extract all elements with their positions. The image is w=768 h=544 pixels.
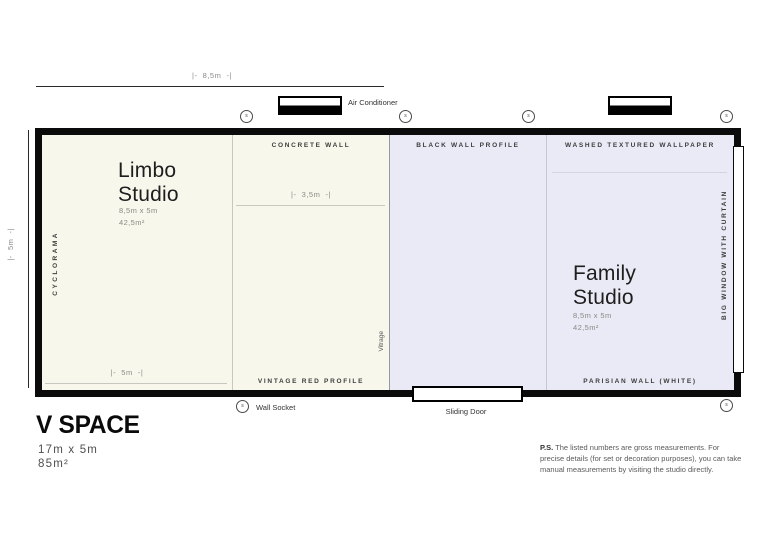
wall-socket-legend-label: Wall Socket xyxy=(256,403,295,412)
family-studio-title: Family Studio xyxy=(573,262,636,309)
top-dimension-line xyxy=(36,86,384,87)
air-conditioner-icon-2 xyxy=(608,96,672,115)
socket-symbol: s xyxy=(527,114,530,119)
top-width-dimension-label: |- 8,5m -| xyxy=(162,71,262,80)
air-conditioner-label: Air Conditioner xyxy=(348,98,398,107)
partition-cyclorama-concrete xyxy=(232,135,233,390)
socket-symbol: s xyxy=(725,114,728,119)
air-conditioner-icon xyxy=(278,96,342,115)
black-wall-profile-label: BLACK WALL PROFILE xyxy=(390,142,546,149)
socket-symbol: s xyxy=(245,114,248,119)
wall-socket-icon: s xyxy=(522,110,535,123)
family-studio-dimensions: 8,5m x 5m 42,5m² xyxy=(573,310,612,335)
big-window-with-curtain-label: BIG WINDOW WITH CURTAIN xyxy=(721,190,728,320)
floorplan-outline: Limbo Studio 8,5m x 5m 42,5m² CYCLORAMA … xyxy=(35,128,741,397)
concrete-width-dimension-label: |- 3,5m -| xyxy=(233,190,389,199)
sliding-door-label: Sliding Door xyxy=(416,407,516,416)
washed-wallpaper-line xyxy=(552,172,727,173)
parisian-wall-label: PARISIAN WALL (WHITE) xyxy=(546,378,734,385)
concrete-dimension-line xyxy=(236,205,385,206)
vintage-red-profile-label: VINTAGE RED PROFILE xyxy=(233,378,389,385)
wall-socket-icon: s xyxy=(720,110,733,123)
cyclorama-dimension-line xyxy=(45,383,227,384)
socket-symbol: s xyxy=(725,403,728,408)
space-dimensions: 17m x 5m xyxy=(38,444,98,456)
concrete-wall-label: CONCRETE WALL xyxy=(233,142,389,149)
socket-symbol: s xyxy=(241,404,244,409)
floorplan-page: |- 8,5m -| |- 5m -| Air Conditioner s s … xyxy=(0,0,768,544)
space-area: 85m² xyxy=(38,458,69,470)
partition-black-washed xyxy=(546,135,547,390)
cyclorama-wall-label: CYCLORAMA xyxy=(52,231,59,296)
ps-note-text: The listed numbers are gross measurement… xyxy=(540,443,741,474)
left-dimension-line xyxy=(28,130,29,388)
partition-vitrage xyxy=(389,135,390,390)
family-studio-zone xyxy=(389,135,734,390)
limbo-studio-dimensions: 8,5m x 5m 42,5m² xyxy=(119,205,158,230)
ps-note: P.S. The listed numbers are gross measur… xyxy=(540,443,742,476)
vitrage-label: Vitrage xyxy=(378,331,385,351)
wall-socket-icon: s xyxy=(399,110,412,123)
space-title: V SPACE xyxy=(36,411,140,440)
sliding-door-icon xyxy=(412,386,523,402)
big-window-icon xyxy=(733,146,744,373)
wall-socket-icon: s xyxy=(240,110,253,123)
wall-socket-legend-icon: s xyxy=(236,400,249,413)
cyclorama-width-dimension-label: |- 5m -| xyxy=(77,368,177,377)
ps-note-label: P.S. xyxy=(540,443,553,452)
socket-symbol: s xyxy=(404,114,407,119)
washed-textured-wallpaper-label: WASHED TEXTURED WALLPAPER xyxy=(546,142,734,149)
wall-socket-icon: s xyxy=(720,399,733,412)
left-height-dimension-label: |- 5m -| xyxy=(6,228,15,261)
limbo-studio-title: Limbo Studio xyxy=(118,159,179,206)
